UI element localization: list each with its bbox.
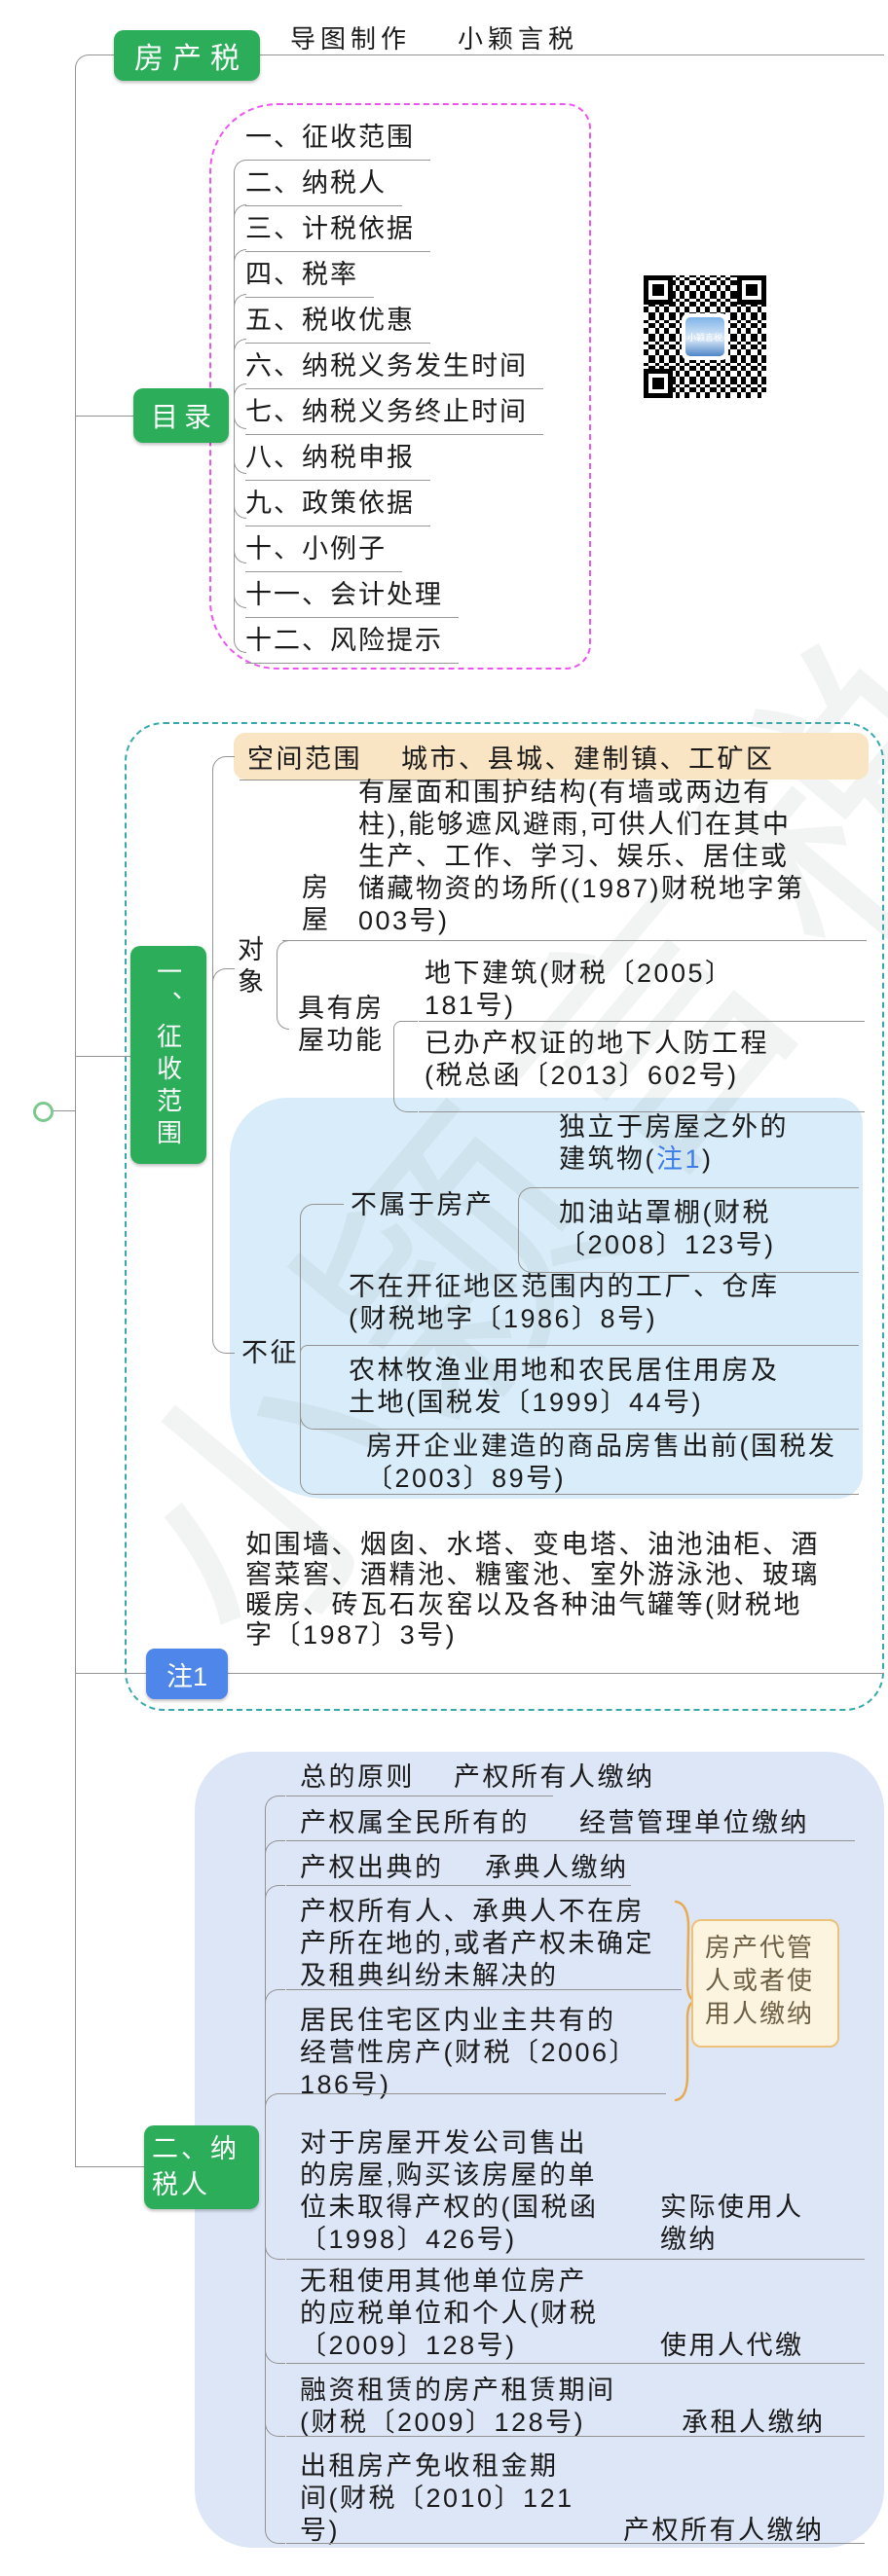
space-scope-value: 城市、县城、建制镇、工矿区 bbox=[401, 738, 775, 776]
underline bbox=[541, 1187, 859, 1188]
underline bbox=[419, 1021, 865, 1022]
mindmap-canvas: 小颖言税 房产税 导图制作 小颖言税 小颖言税 目录 一、征收范围 二、纳税人 … bbox=[0, 0, 888, 2576]
underline bbox=[286, 1840, 855, 1841]
taxpayer-row-label[interactable]: 出租房产免收租金期间(财税〔2010〕121号) bbox=[300, 2450, 577, 2547]
taxpayer-row-label[interactable]: 融资租赁的房产租赁期间(财税〔2009〕128号) bbox=[300, 2375, 636, 2439]
root-node[interactable]: 房产税 bbox=[114, 30, 260, 81]
underground-building-text[interactable]: 地下建筑(财税〔2005〕181号) bbox=[425, 958, 760, 1022]
underline bbox=[331, 1345, 859, 1346]
taxpayer-row-label[interactable]: 对于房屋开发公司售出的房屋,购买该房屋的单位未取得产权的(国税函〔1998〕42… bbox=[300, 2127, 607, 2256]
branch-line bbox=[212, 1056, 235, 1354]
toc-item[interactable]: 九、政策依据 bbox=[245, 481, 430, 526]
toc-item[interactable]: 五、税收优惠 bbox=[245, 298, 430, 344]
taxpayer-row-value: 产权所有人缴纳 bbox=[454, 1761, 655, 1794]
underline bbox=[286, 2363, 865, 2364]
taxpayer-row-label[interactable]: 产权出典的 bbox=[300, 1852, 444, 1884]
taxpayer-row-label[interactable]: 无租使用其他单位房产的应税单位和个人(财税〔2009〕128号) bbox=[300, 2266, 607, 2362]
toc-item[interactable]: 七、纳税义务终止时间 bbox=[245, 389, 543, 435]
branch-toc bbox=[76, 416, 136, 417]
gas-station-text[interactable]: 加油站罩棚(财税〔2008〕123号) bbox=[559, 1197, 807, 1261]
qr-finder-icon bbox=[644, 369, 673, 398]
toc-item[interactable]: 四、税率 bbox=[245, 252, 374, 298]
branch-taxpayer bbox=[76, 2166, 146, 2167]
branch-line bbox=[265, 2166, 285, 2544]
toc-item[interactable]: 八、纳税申报 bbox=[245, 435, 430, 481]
taxpayer-node[interactable]: 二、纳税人 bbox=[144, 2125, 259, 2209]
note1-reference-link[interactable]: 注1 bbox=[656, 1144, 702, 1174]
toc-list: 一、征收范围 二、纳税人 三、计税依据 四、税率 五、税收优惠 六、纳税义务发生… bbox=[245, 115, 543, 664]
branch-line bbox=[277, 940, 289, 969]
note1-text[interactable]: 如围墙、烟囱、水塔、变电塔、油池油柜、酒窖菜窖、酒精池、糖蜜池、室外游泳池、玻璃… bbox=[245, 1530, 830, 1651]
space-scope-row[interactable]: 空间范围 城市、县城、建制镇、工矿区 bbox=[234, 733, 869, 780]
underline bbox=[286, 1989, 682, 1990]
underline bbox=[286, 2436, 865, 2437]
taxpayer-row-value: 承租人缴纳 bbox=[682, 2407, 826, 2439]
qr-finder-icon bbox=[644, 275, 673, 305]
scope-node[interactable]: 一、征收范围 bbox=[130, 946, 206, 1164]
object-label[interactable]: 对象 bbox=[238, 934, 271, 998]
independent-structure-text[interactable]: 独立于房屋之外的建筑物(注1) bbox=[559, 1111, 807, 1176]
toc-item[interactable]: 十二、风险提示 bbox=[245, 618, 459, 664]
taxpayer-group-case1[interactable]: 产权所有人、承典人不在房产所在地的,或者产权未确定及租典纠纷未解决的 bbox=[300, 1896, 665, 1992]
underline bbox=[282, 940, 867, 941]
custodian-payer-box[interactable]: 房产代管人或者使用人缴纳 bbox=[691, 1919, 839, 2048]
taxpayer-row-value: 经营管理单位缴纳 bbox=[579, 1807, 809, 1839]
underline bbox=[286, 2543, 865, 2544]
not-property-label[interactable]: 不属于房产 bbox=[351, 1189, 495, 1221]
taxpayer-group-case2[interactable]: 居民住宅区内业主共有的经营性房产(财税〔2006〕186号) bbox=[300, 2005, 636, 2101]
taxpayer-row-value: 实际使用人缴纳 bbox=[660, 2192, 826, 2256]
branch-line bbox=[265, 2093, 285, 2167]
civil-defense-text[interactable]: 已办产权证的地下人防工程(税总函〔2013〕602号) bbox=[425, 1028, 790, 1092]
branch-scope bbox=[76, 1056, 130, 1057]
branch-line bbox=[300, 1204, 344, 1354]
port-stub-line bbox=[51, 1110, 75, 1111]
agriculture-text[interactable]: 农林牧渔业用地和农民居住用房及土地(国税发〔1999〕44号) bbox=[349, 1355, 806, 1419]
branch-line bbox=[300, 1353, 351, 1495]
collapse-port[interactable] bbox=[33, 1102, 54, 1122]
toc-item[interactable]: 二、纳税人 bbox=[245, 161, 402, 206]
factory-warehouse-text[interactable]: 不在开征地区范围内的工厂、仓库(财税地字〔1986〕8号) bbox=[349, 1271, 806, 1335]
branch-line bbox=[234, 416, 246, 653]
house-label[interactable]: 房屋 bbox=[302, 872, 335, 936]
branch-line bbox=[277, 968, 289, 1030]
qr-finder-icon bbox=[737, 275, 766, 305]
toc-item[interactable]: 六、纳税义务发生时间 bbox=[245, 344, 543, 389]
house-function-label[interactable]: 具有房屋功能 bbox=[298, 993, 395, 1057]
independent-structure-post: ) bbox=[702, 1144, 714, 1174]
underline bbox=[331, 1429, 859, 1430]
branch-line bbox=[518, 1187, 542, 1205]
branch-line bbox=[212, 968, 235, 1057]
note1-node[interactable]: 注1 bbox=[146, 1649, 228, 1699]
house-definition-text[interactable]: 有屋面和围护结构(有墙或两边有柱),能够遮风避雨,可供人们在其中生产、工作、学习… bbox=[358, 777, 806, 937]
credit-author-label: 小颖言税 bbox=[458, 19, 578, 55]
underline bbox=[278, 2093, 666, 2094]
developer-text[interactable]: 房开企业建造的商品房售出前(国税发〔2003〕89号) bbox=[366, 1431, 853, 1495]
qr-logo-caption: 小颖言税 bbox=[685, 317, 724, 356]
toc-node[interactable]: 目录 bbox=[133, 388, 229, 443]
qr-code: 小颖言税 bbox=[641, 272, 769, 401]
underline bbox=[286, 1796, 553, 1796]
not-levied-label[interactable]: 不征 bbox=[241, 1337, 299, 1369]
taxpayer-row-label[interactable]: 产权属全民所有的 bbox=[300, 1807, 530, 1839]
branch-line bbox=[393, 1029, 418, 1112]
underline bbox=[286, 1885, 631, 1886]
space-scope-label: 空间范围 bbox=[247, 738, 362, 776]
underline bbox=[351, 1494, 859, 1495]
toc-item[interactable]: 十、小例子 bbox=[245, 526, 402, 572]
toc-item[interactable]: 一、征收范围 bbox=[245, 115, 430, 161]
taxpayer-row-label[interactable]: 总的原则 bbox=[300, 1761, 415, 1794]
taxpayer-row-value: 承典人缴纳 bbox=[485, 1852, 629, 1884]
branch-line bbox=[518, 1204, 542, 1273]
taxpayer-row-value: 使用人代缴 bbox=[660, 2330, 804, 2362]
underline bbox=[286, 2259, 865, 2260]
credit-maker-label: 导图制作 bbox=[290, 19, 411, 55]
trunk-line bbox=[75, 54, 115, 2167]
toc-item[interactable]: 十一、会计处理 bbox=[245, 572, 459, 618]
toc-item[interactable]: 三、计税依据 bbox=[245, 206, 430, 252]
qr-pattern: 小颖言税 bbox=[644, 275, 766, 398]
branch-line bbox=[234, 383, 246, 417]
qr-center-logo: 小颖言税 bbox=[682, 313, 728, 360]
